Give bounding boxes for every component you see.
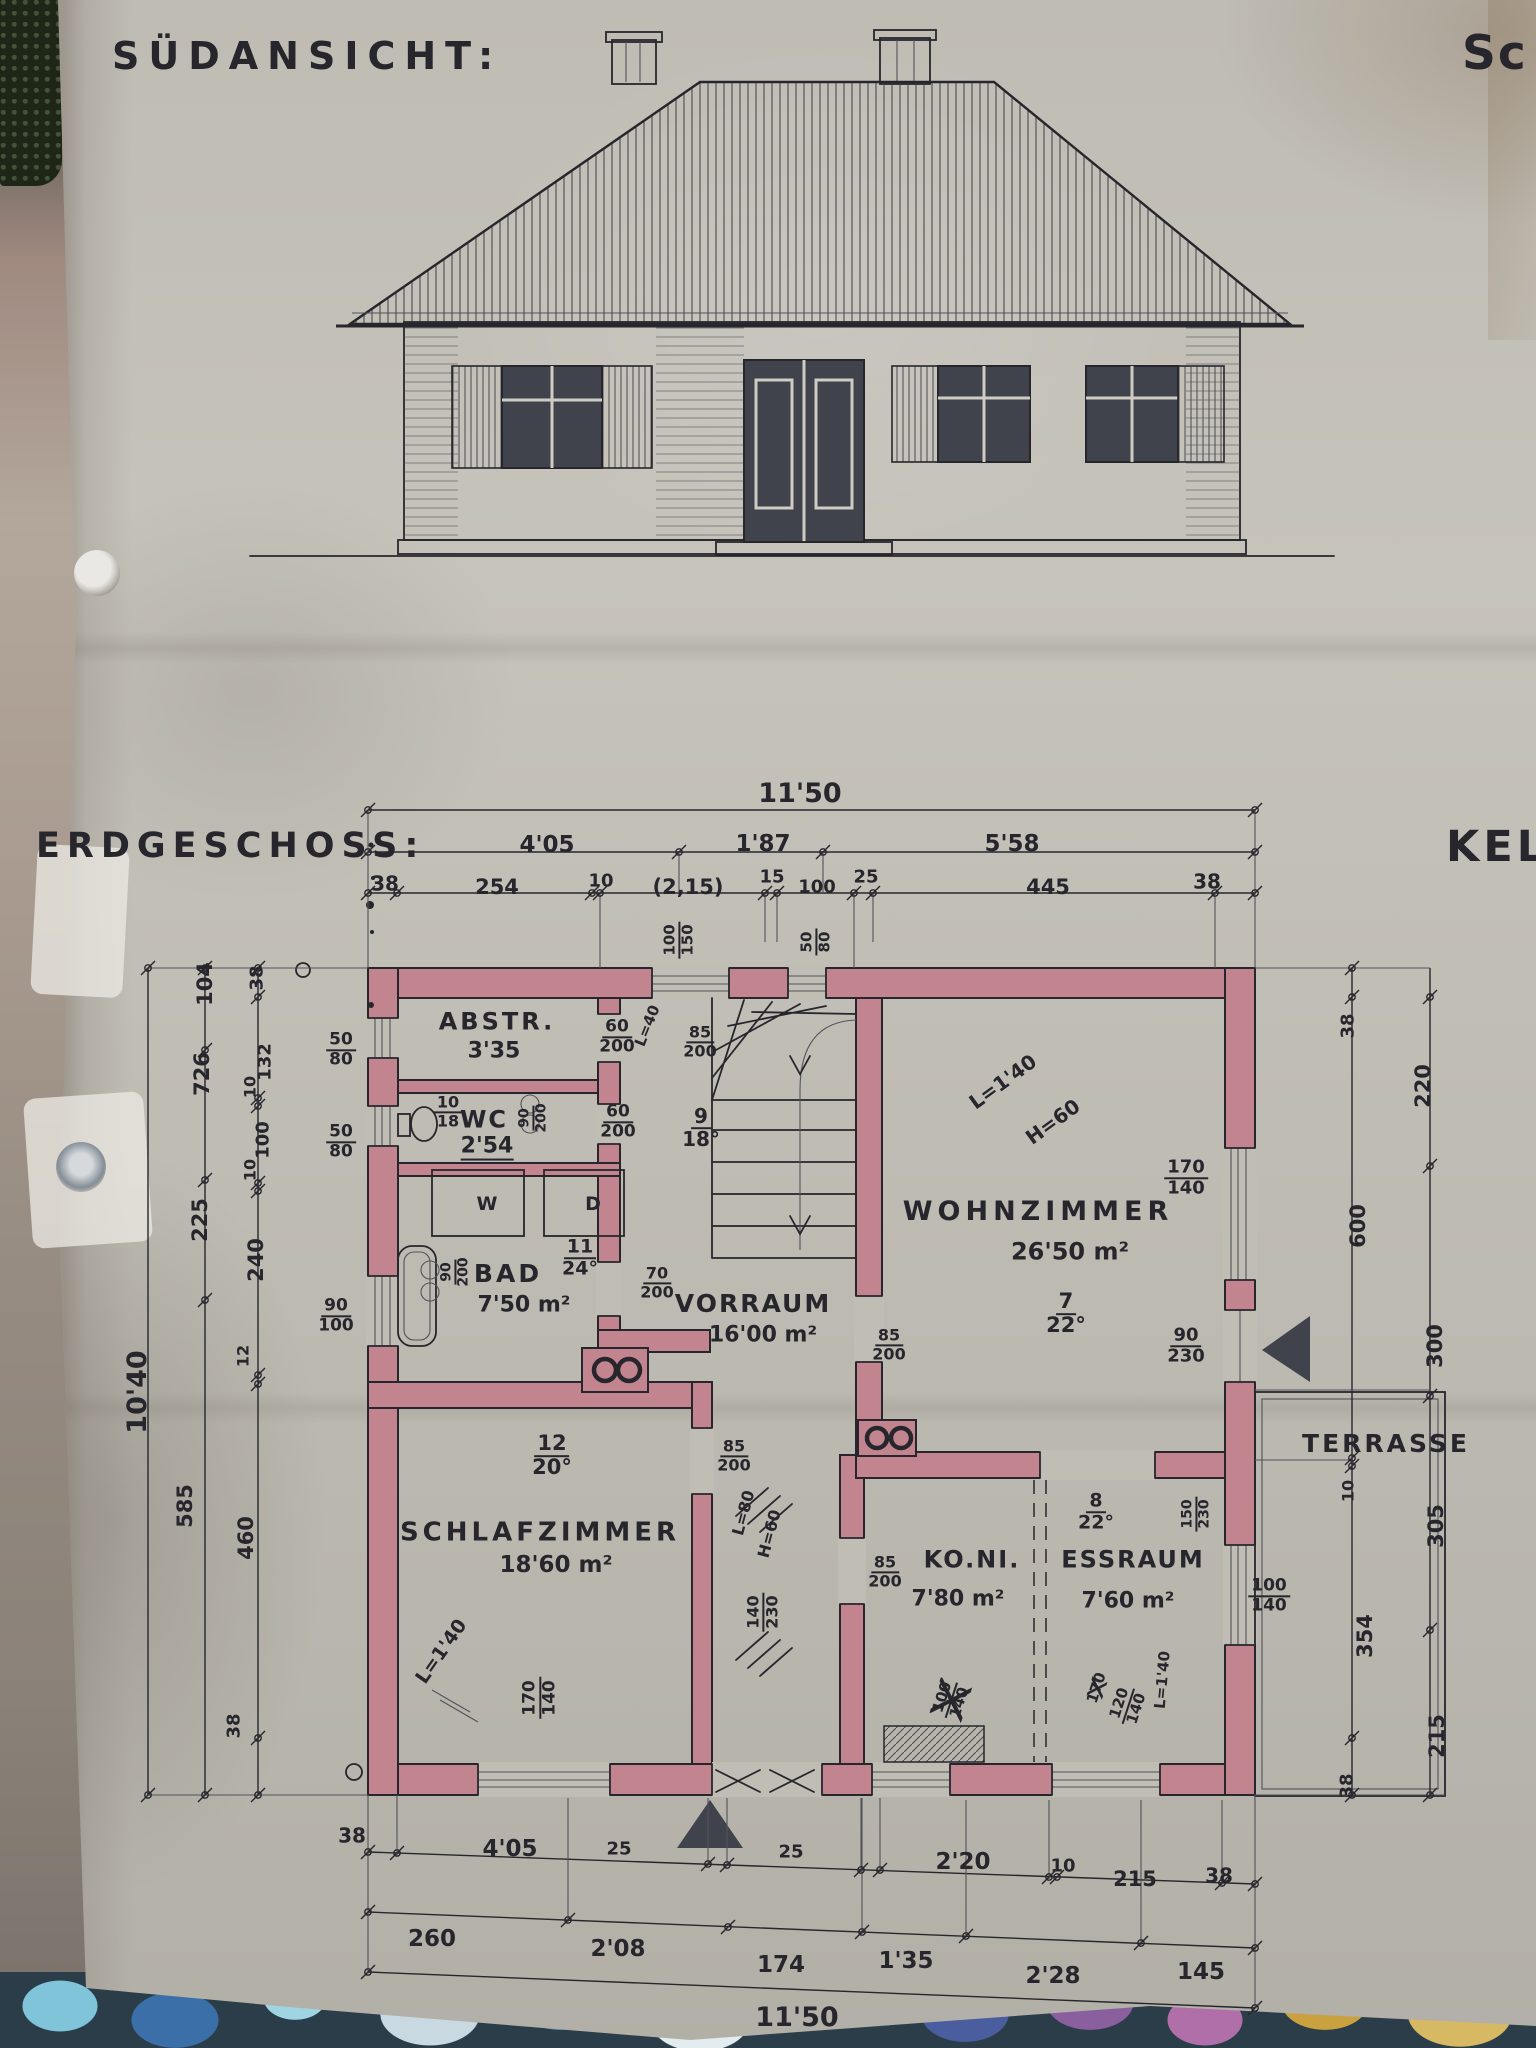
dim-top-405: 4'05 [519, 834, 574, 858]
dim-bottom-25b: 25 [778, 1844, 803, 1863]
room-vorraum-area: 16'00 m² [709, 1325, 817, 1348]
ground-floor-title: ERDGESCHOSS: [36, 826, 425, 866]
scanned-plan-photo: 11'504'051'875'583825410(2,15)1510025445… [0, 0, 1536, 2048]
room-essraum-name: ESSRAUM [1061, 1548, 1205, 1573]
door-wohn-ess-150230: 150230 [1180, 1496, 1211, 1531]
door-bad-90200: 90200 [439, 1257, 470, 1286]
room-wohnzimmer-area: 26'50 m² [1011, 1240, 1129, 1265]
dim-left-225: 225 [190, 1198, 212, 1242]
dim-left-104: 104 [195, 962, 217, 1006]
dim-right-38a: 38 [1340, 1013, 1359, 1038]
fixture-shower-label: D [585, 1195, 601, 1215]
door-abstr-60200: 60200 [599, 1018, 635, 1055]
dim-left-585: 585 [175, 1484, 197, 1528]
dim-left-12: 12 [236, 1345, 253, 1367]
clipped-heading-top-right: Sc [1462, 26, 1528, 81]
dim-bottom-10: 10 [1050, 1858, 1075, 1877]
dim-right-305: 305 [1426, 1504, 1448, 1548]
dim-left-240: 240 [246, 1238, 268, 1282]
dim-bottom2-208: 2'08 [590, 1938, 645, 1962]
dim-top-445: 445 [1026, 877, 1070, 899]
win-wohnzimmer-170140: 170140 [1164, 1158, 1208, 1197]
note-l40: L=40 [633, 1003, 664, 1049]
dim-right-38b: 38 [1339, 1773, 1358, 1798]
note-schlafzimmer-l140: L=1'40 [413, 1616, 471, 1688]
room-kochnische-area: 7'80 m² [912, 1589, 1005, 1612]
note-wc-frac: 1018 [434, 1094, 462, 1129]
room-abstellraum-size: 3'35 [468, 1041, 521, 1064]
dim-top-38-right: 38 [1193, 872, 1221, 893]
dim-top-15: 15 [759, 869, 784, 888]
door-wc-90200: 90200 [517, 1103, 548, 1132]
note-essraum-frac: 822° [1078, 1491, 1114, 1533]
door-wc-60200: 60200 [600, 1103, 636, 1140]
dim-bottom-38-right: 38 [1205, 1866, 1233, 1887]
win-ess-120140: 120140 [1106, 1683, 1149, 1729]
note-corridor-h60: H=60 [756, 1508, 785, 1560]
dim-right-600: 600 [1348, 1204, 1370, 1248]
dim-bottom2-145: 145 [1177, 1961, 1225, 1985]
note-ess-l140: L=1'40 [1153, 1650, 1174, 1709]
win-schlafzimmer-170140: 170140 [521, 1677, 558, 1719]
room-abstellraum-name: ABSTR. [439, 1010, 556, 1035]
area-terrasse-name: TERRASSE [1302, 1431, 1470, 1457]
door-stair-85200: 85200 [683, 1024, 716, 1059]
dim-left-100: 100 [255, 1121, 274, 1159]
punch-hole [74, 550, 120, 596]
south-elevation-title: SÜDANSICHT: [112, 34, 502, 78]
win-essraum-100140: 100140 [1248, 1577, 1290, 1614]
dim-left-38a: 38 [249, 965, 268, 990]
win-ess-170-crossed: 170 [1085, 1671, 1110, 1706]
dim-top-187: 1'87 [735, 833, 790, 857]
dim-top-254: 254 [475, 877, 519, 899]
note-corridor-l80: L=80 [730, 1489, 758, 1538]
dim-left-726: 726 [192, 1052, 214, 1096]
win-top-5080: 5080 [799, 929, 832, 956]
door-vorraum-bad-70200: 70200 [640, 1265, 673, 1300]
dim-bottom-405: 4'05 [482, 1838, 537, 1862]
door-corridor-140230: 140230 [745, 1592, 780, 1631]
win-koni-100140-crossed: 100140 [929, 1677, 972, 1723]
note-stair-frac: 918° [682, 1106, 720, 1150]
dim-right-354: 354 [1355, 1614, 1377, 1658]
dim-top-215: (2,15) [652, 877, 723, 899]
note-wohnzimmer-l140: L=1'40 [966, 1051, 1041, 1113]
win-top-100150: 100150 [662, 921, 695, 958]
room-vorraum-name: VORRAUM [675, 1291, 831, 1317]
dim-bottom-25a: 25 [606, 1841, 631, 1860]
note-bad-frac: 1124° [562, 1237, 598, 1279]
dim-top-10: 10 [588, 873, 613, 892]
dim-left-10a: 10 [243, 1076, 260, 1098]
dim-right-215: 215 [1427, 1714, 1449, 1758]
win-wc-5080: 5080 [326, 1123, 356, 1160]
dim-bottom-38-left: 38 [338, 1826, 366, 1847]
room-schlafzimmer-area: 18'60 m² [499, 1554, 612, 1578]
dim-bottom2-228: 2'28 [1025, 1965, 1080, 1989]
note-schlafzimmer-frac: 1220° [532, 1433, 572, 1479]
dim-top-25: 25 [853, 869, 878, 888]
dim-bottom2-135: 1'35 [878, 1950, 933, 1974]
dim-left-10b: 10 [243, 1159, 260, 1181]
plan-labels-layer: 11'504'051'875'583825410(2,15)1510025445… [0, 0, 1536, 2048]
win-abstr-5080: 5080 [326, 1031, 356, 1068]
room-wohnzimmer-name: WOHNZIMMER [903, 1198, 1174, 1226]
dim-left-1040: 10'40 [124, 1350, 152, 1433]
note-wohnzimmer-h60: H=60 [1022, 1096, 1084, 1149]
room-bad-area: 7'50 m² [478, 1295, 571, 1318]
punch-hole-grommet [56, 1142, 106, 1192]
clipped-heading-keller: KEL [1446, 822, 1536, 872]
room-wc-size: 2'54 [461, 1136, 514, 1161]
dim-left-38b: 38 [226, 1713, 245, 1738]
dim-bottom2-174: 174 [757, 1954, 805, 1978]
room-wc-name: WC [460, 1108, 508, 1133]
win-bad-90100: 90100 [318, 1297, 354, 1334]
door-wohnzimmer-85200: 85200 [872, 1327, 905, 1362]
room-bad-name: BAD [474, 1261, 542, 1287]
room-kochnische-name: KO.NI. [924, 1548, 1021, 1573]
dim-right-10: 10 [1341, 1480, 1358, 1502]
dim-top-558: 5'58 [984, 833, 1039, 857]
door-kochnische-85200: 85200 [868, 1554, 901, 1589]
dim-bottom-220: 2'20 [935, 1851, 990, 1875]
door-terrasse-90230: 90230 [1167, 1326, 1205, 1365]
room-schlafzimmer-name: SCHLAFZIMMER [400, 1519, 680, 1546]
dim-right-220: 220 [1413, 1064, 1435, 1108]
room-essraum-area: 7'60 m² [1082, 1591, 1175, 1614]
dim-right-300: 300 [1425, 1324, 1447, 1368]
dim-overall-top: 11'50 [758, 780, 841, 808]
dim-overall-bottom: 11'50 [755, 2004, 838, 2032]
fixture-bathtub-label: W [477, 1195, 498, 1215]
dim-top-38-left: 38 [371, 874, 399, 895]
dim-top-100: 100 [798, 879, 836, 898]
dim-bottom2-260: 260 [408, 1928, 456, 1952]
dim-bottom-215: 215 [1113, 1869, 1157, 1891]
dim-left-460: 460 [236, 1516, 258, 1560]
door-schlafzimmer-85200: 85200 [717, 1438, 750, 1473]
note-wohnzimmer-frac: 722° [1046, 1291, 1086, 1337]
